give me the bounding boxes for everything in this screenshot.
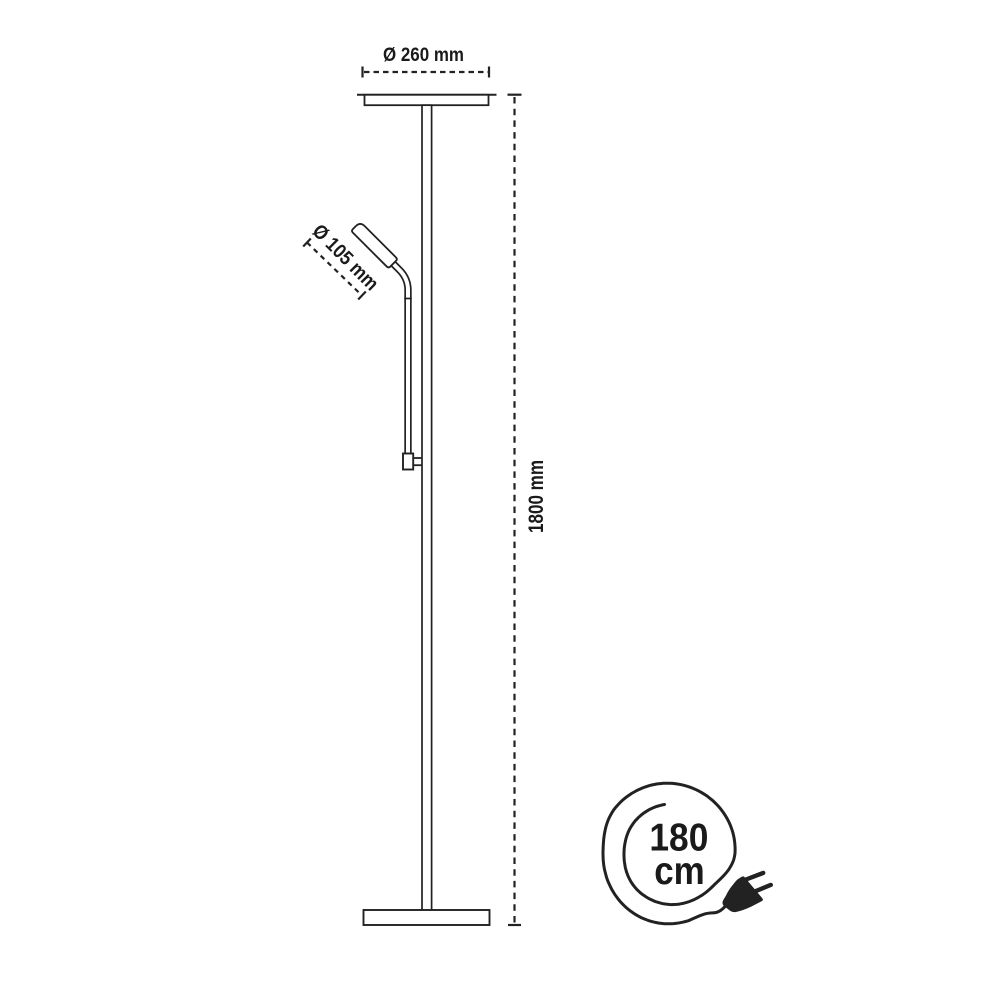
- svg-text:1800 mm: 1800 mm: [525, 460, 548, 533]
- svg-text:Ø 260 mm: Ø 260 mm: [383, 45, 464, 66]
- svg-text:Ø 105 mm: Ø 105 mm: [308, 220, 383, 295]
- svg-text:cm: cm: [654, 850, 705, 893]
